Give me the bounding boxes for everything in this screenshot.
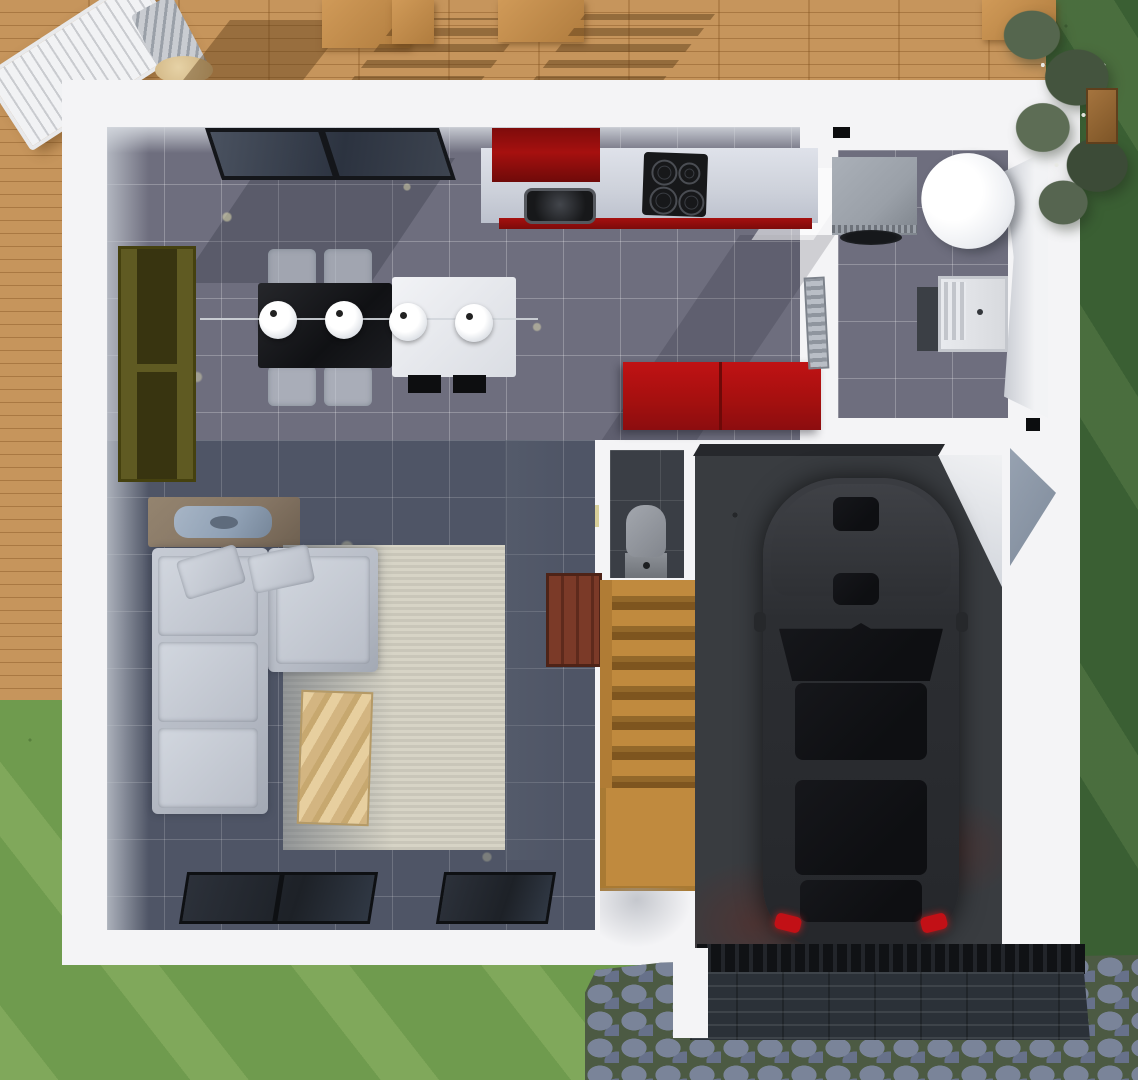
wc-door-handle: [595, 505, 599, 527]
dining-chair-3: [268, 366, 316, 406]
toilet-bowl: [626, 505, 666, 557]
hedge-planter-box: [1086, 88, 1118, 144]
flush-dot: [643, 562, 650, 569]
laundry-sink: [938, 276, 1008, 352]
burner-3: [649, 186, 678, 215]
stair-landing-shadow: [600, 888, 692, 948]
sink-drain: [977, 309, 983, 315]
red-sideboard: [623, 362, 821, 430]
hall-cabinet: [546, 573, 602, 667]
pendant-lamp-3: [389, 303, 427, 341]
dining-chair-5: [408, 375, 441, 393]
tray-oval: [210, 516, 238, 529]
garage-header-beam: [693, 444, 945, 456]
car-sunroof-mid: [833, 573, 879, 605]
lamp-dot: [336, 310, 343, 317]
door-stop-mark-1: [833, 127, 850, 138]
console-glass-tray: [174, 506, 272, 538]
cooker-hood: [492, 128, 600, 182]
stairs-winder-treads: [600, 788, 698, 891]
car-mirror-right: [956, 612, 968, 632]
car-roof-glass-1: [795, 683, 927, 760]
garage-threshold-grate: [697, 944, 1085, 974]
dining-chair-6: [453, 375, 486, 393]
garage-wall-stub: [673, 948, 708, 1038]
cooktop: [642, 152, 708, 217]
kitchen-sink: [524, 188, 596, 224]
deck-chair-1: [392, 0, 434, 44]
sofa-cushion-3: [158, 728, 258, 808]
dining-chair-4: [324, 366, 372, 406]
car-mirror-left: [754, 612, 766, 632]
washer-drum: [840, 230, 902, 245]
garage-door-apron: [690, 972, 1090, 1040]
stairs-straight-flight: [600, 580, 710, 788]
bottom-glass-panel-2: [436, 872, 556, 924]
floor-plan-scene: [0, 0, 1138, 1080]
olive-bookshelf: [118, 246, 196, 482]
pendant-lamp-2: [325, 301, 363, 339]
washing-machine: [832, 157, 917, 235]
car: [763, 478, 959, 948]
burner-4: [678, 189, 705, 216]
car-windshield: [779, 623, 943, 681]
car-roof-glass-2: [795, 780, 927, 875]
car-sunroof-front: [833, 497, 879, 531]
burner-2: [678, 162, 701, 185]
lamp-dot: [270, 310, 277, 317]
lamp-dot: [400, 312, 407, 319]
burner-1: [651, 159, 678, 186]
bottom-glass-panel-1: [179, 872, 378, 924]
pendant-lamp-1: [259, 301, 297, 339]
door-mullion: [318, 132, 339, 176]
sideboard-seam: [719, 362, 722, 430]
sink-drainer: [944, 282, 966, 340]
coffee-table: [297, 690, 374, 826]
sofa-cushion-2: [158, 642, 258, 722]
door-stop-mark-2: [1026, 418, 1040, 431]
panel-divider: [272, 875, 284, 921]
car-rear-window: [800, 880, 922, 922]
pendant-lamp-4: [455, 304, 493, 342]
sliding-glass-door-top: [205, 128, 456, 180]
lamp-dot: [466, 313, 473, 320]
rust-console: [148, 497, 300, 547]
